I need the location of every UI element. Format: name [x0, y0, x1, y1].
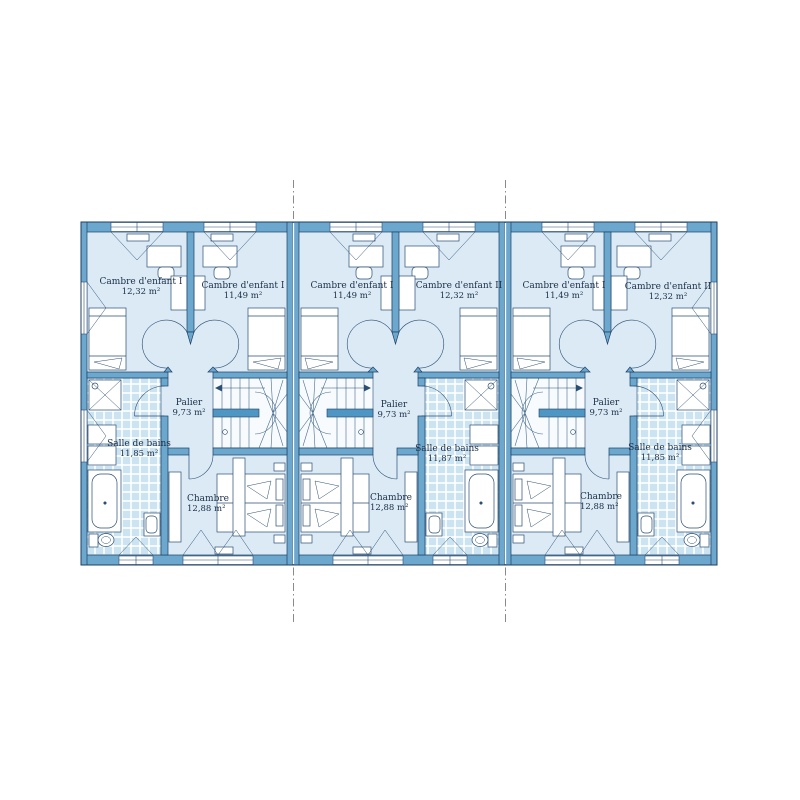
room-area: 11,49 m² [224, 291, 263, 301]
room-area: 12,32 m² [649, 292, 688, 302]
room-label: Salle de bains [628, 443, 692, 453]
room-label: Palier [593, 398, 620, 408]
room-label: Cambre d'enfant I [523, 281, 606, 291]
room-area: 12,88 m² [187, 504, 226, 514]
room-area: 12,32 m² [440, 291, 479, 301]
unit-3-floorplan [505, 222, 717, 565]
room-area: 11,49 m² [545, 291, 584, 301]
room-area: 11,85 m² [641, 453, 680, 463]
room-label: Salle de bains [415, 444, 479, 454]
room-area: 11,87 m² [428, 454, 467, 464]
room-label: Chambre [370, 493, 412, 503]
room-area: 9,73 m² [589, 408, 622, 418]
room-label: Cambre d'enfant I [311, 281, 394, 291]
room-label: Cambre d'enfant II [416, 281, 503, 291]
room-area: 9,73 m² [377, 410, 410, 420]
room-area: 12,32 m² [122, 287, 161, 297]
unit-2-floorplan [293, 222, 505, 565]
room-label: Cambre d'enfant I [202, 281, 285, 291]
room-label: Palier [381, 400, 408, 410]
room-area: 11,49 m² [333, 291, 372, 301]
room-area: 11,85 m² [120, 449, 159, 459]
room-label: Chambre [187, 494, 229, 504]
room-area: 12,88 m² [580, 502, 619, 512]
room-label: Salle de bains [107, 439, 171, 449]
room-area: 12,88 m² [370, 503, 409, 513]
room-area: 9,73 m² [172, 408, 205, 418]
floor-plan-canvas: Cambre d'enfant I 12,32 m² Cambre d'enfa… [0, 0, 800, 800]
room-label: Palier [176, 398, 203, 408]
room-label: Cambre d'enfant II [625, 282, 712, 292]
room-label: Chambre [580, 492, 622, 502]
room-label: Cambre d'enfant I [100, 277, 183, 287]
floor-plan-page: Cambre d'enfant I 12,32 m² Cambre d'enfa… [0, 0, 800, 800]
